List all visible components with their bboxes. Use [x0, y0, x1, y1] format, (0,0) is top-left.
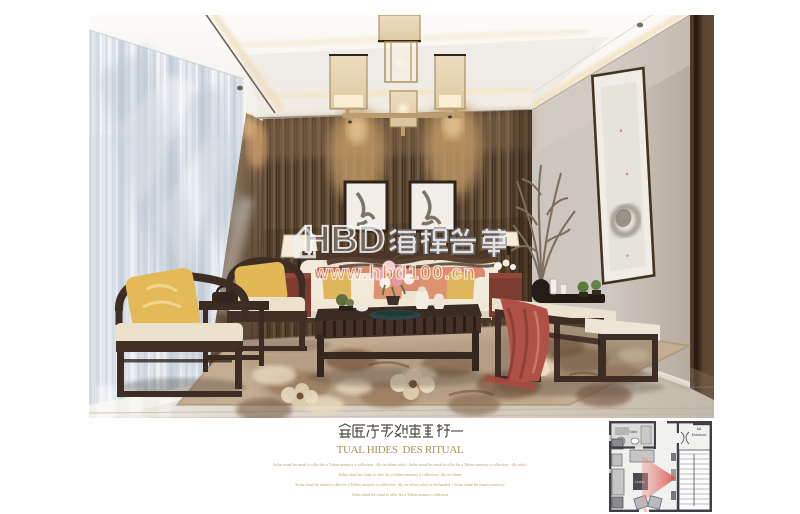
svg-text:Toilet: Toilet — [629, 430, 637, 434]
svg-text:6A: 6A — [697, 427, 702, 431]
svg-text:Entrance: Entrance — [692, 433, 707, 437]
